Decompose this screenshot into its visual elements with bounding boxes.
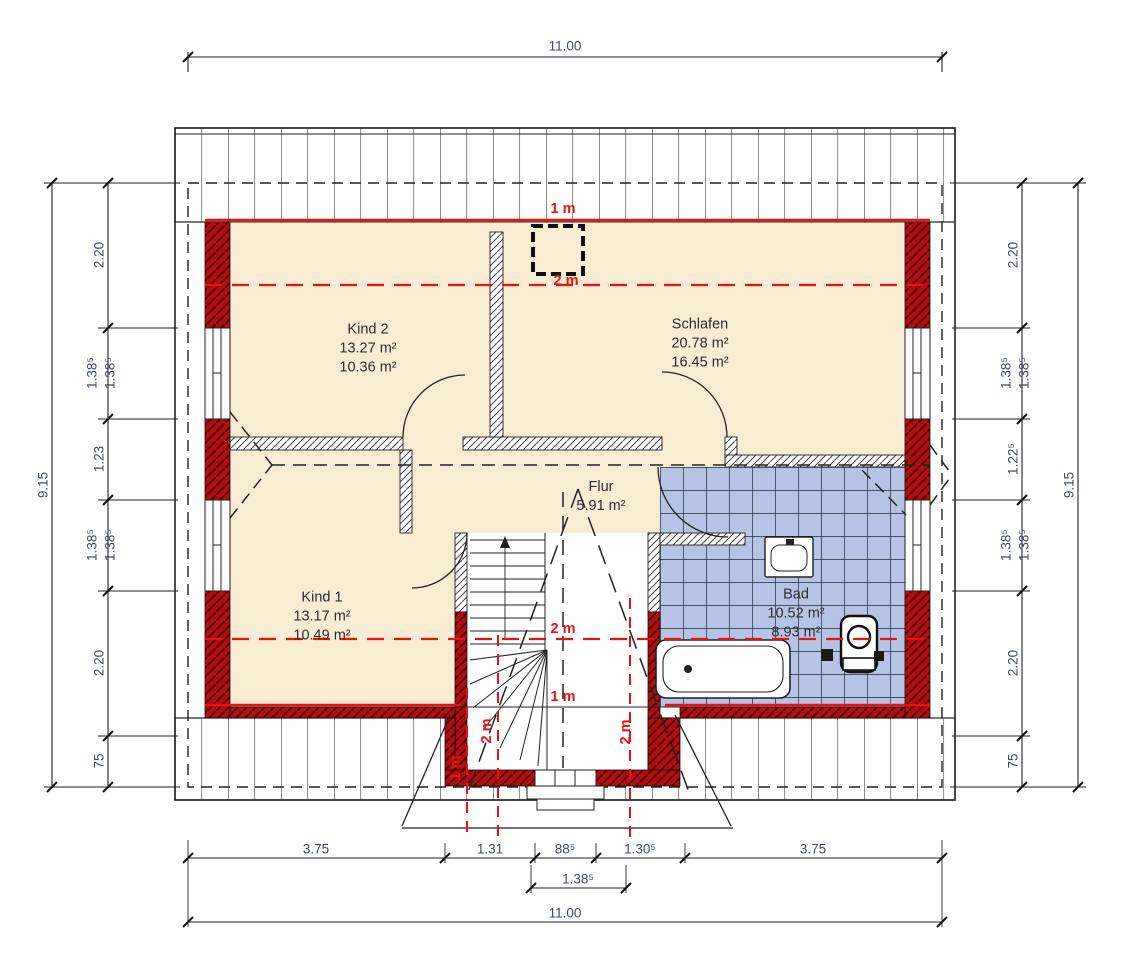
height-label-2m-dormer-left: 2 m bbox=[479, 719, 495, 744]
toilet bbox=[841, 616, 877, 672]
dim-left-seg-0: 2.20 bbox=[92, 242, 107, 268]
dim-left-seg-2: 1.38⁵ bbox=[103, 357, 118, 389]
dormer-sill-inner bbox=[537, 799, 594, 810]
height-label-1m-dormer-left: 1 m bbox=[448, 756, 464, 781]
plan-linework bbox=[0, 0, 1142, 958]
floor-plan-canvas: Kind 2 13.27 m² 10.36 m² Schlafen 20.78 … bbox=[0, 0, 1142, 958]
room-label-kind1: Kind 1 13.17 m² 10.49 m² bbox=[293, 589, 350, 646]
window-schlafen bbox=[905, 328, 930, 419]
window-dormer bbox=[535, 770, 596, 786]
sink bbox=[765, 537, 813, 577]
dim-left-seg-4: 1.38⁵ bbox=[85, 529, 100, 561]
dim-right-seg-1: 1.38⁵ bbox=[999, 357, 1014, 389]
dim-bottom-seg-0: 3.75 bbox=[303, 842, 329, 857]
dim-right-seg-3: 1.22⁵ bbox=[1006, 443, 1021, 475]
dim-right-seg-2: 1.38⁵ bbox=[1017, 357, 1032, 389]
room-label-schlafen: Schlafen 20.78 m² 16.45 m² bbox=[671, 316, 728, 373]
height-label-2m-dormer-right: 2 m bbox=[618, 720, 634, 745]
dim-bottom-seg-3: 1.30⁵ bbox=[624, 842, 656, 857]
shutoff-valve-left bbox=[821, 649, 833, 661]
room-label-kind2: Kind 2 13.27 m² 10.36 m² bbox=[339, 321, 396, 378]
dim-left-seg-6: 2.20 bbox=[92, 650, 107, 676]
dim-left-seg-7: 75 bbox=[92, 753, 107, 768]
dim-bottom-seg-1: 1.31 bbox=[477, 842, 503, 857]
height-label-1m-top: 1 m bbox=[551, 201, 576, 217]
dim-left-seg-1: 1.38⁵ bbox=[85, 357, 100, 389]
height-label-1m-stair: 1 m bbox=[551, 689, 576, 705]
dim-right-seg-7: 75 bbox=[1006, 753, 1021, 768]
dim-bottom-seg-2: 88⁵ bbox=[555, 842, 576, 857]
dormer-sill-outer bbox=[527, 786, 604, 799]
dim-left-total: 9.15 bbox=[36, 472, 51, 498]
dim-left-seg-3: 1.23 bbox=[92, 446, 107, 472]
dim-left-seg-5: 1.38⁵ bbox=[103, 529, 118, 561]
room-fills bbox=[230, 222, 905, 770]
height-label-2m-stair: 2 m bbox=[551, 621, 576, 637]
room-label-bad: Bad 10.52 m² 8.93 m² bbox=[767, 586, 824, 643]
chimney bbox=[533, 226, 583, 274]
dim-right-seg-0: 2.20 bbox=[1006, 242, 1021, 268]
room-label-flur: Flur 5.91 m² bbox=[576, 478, 625, 516]
height-label-2m-top: 2 m bbox=[554, 273, 579, 289]
dim-right-total: 9.15 bbox=[1062, 472, 1077, 498]
dim-bottom-seg-4: 3.75 bbox=[800, 842, 826, 857]
dim-right-seg-5: 1.38⁵ bbox=[1017, 529, 1032, 561]
window-kind2 bbox=[205, 328, 230, 419]
dim-right-seg-4: 1.38⁵ bbox=[999, 529, 1014, 561]
dim-bottom-window: 1.38⁵ bbox=[562, 872, 594, 887]
window-bad bbox=[905, 500, 930, 591]
dim-top-total: 11.00 bbox=[549, 39, 582, 54]
bathtub bbox=[656, 640, 790, 698]
shutoff-valve-right bbox=[874, 651, 884, 661]
dim-bottom-total: 11.00 bbox=[549, 906, 582, 921]
window-kind1 bbox=[205, 500, 230, 591]
dim-right-seg-6: 2.20 bbox=[1006, 650, 1021, 676]
